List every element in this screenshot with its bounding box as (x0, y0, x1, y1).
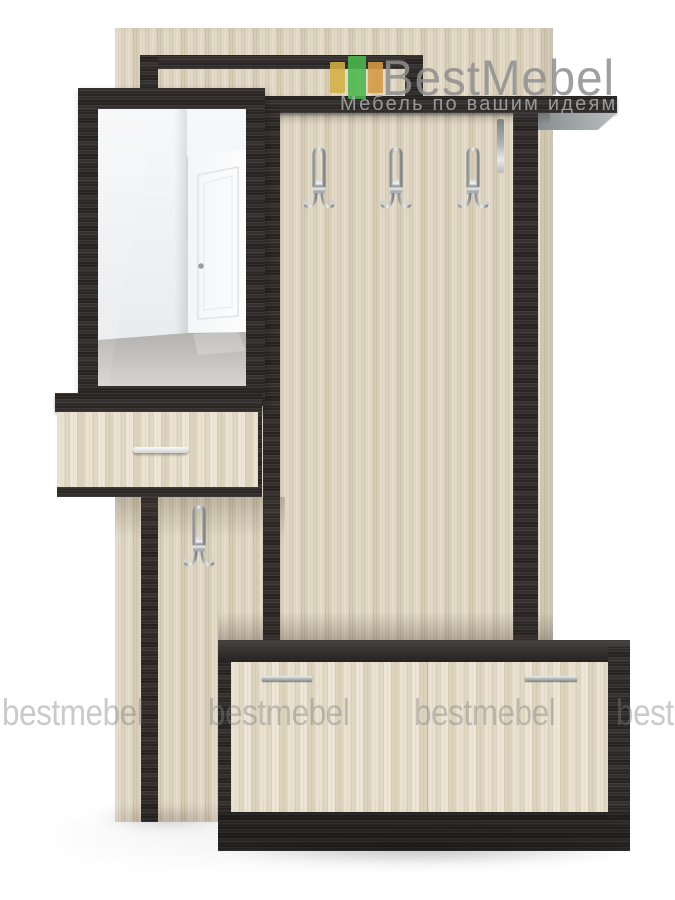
watermark-text: bestmebel (414, 692, 555, 734)
bench-door-right (428, 662, 608, 812)
left-floor-post (141, 490, 158, 822)
mirror-frame (78, 88, 265, 406)
watermark-text: bestmebel (208, 692, 349, 734)
logo-bar-yellow-icon (330, 62, 345, 93)
coat-hook-3 (455, 145, 491, 215)
brand-tagline: Мебель по вашим идеям (340, 93, 617, 116)
drawer-right-edge (258, 412, 262, 497)
drawer-handle (133, 447, 188, 453)
reflected-door (187, 149, 246, 333)
bench-top (218, 640, 630, 663)
mirror-glass (98, 109, 246, 386)
product-photo-hallway-unit: BestMebel Мебель по вашим идеям bestmebe… (0, 0, 675, 900)
coat-hook-1 (301, 145, 337, 215)
reflected-wall-corner (174, 109, 187, 333)
bench-handle-right (525, 676, 577, 681)
floor-reflection-highlight (193, 331, 246, 355)
coat-hook-2 (378, 145, 414, 215)
watermark-text: bestmebel (616, 692, 675, 734)
right-post (513, 113, 538, 648)
reflected-door-knob (198, 263, 204, 269)
side-hook-profile (497, 119, 504, 173)
coat-hook-lower (181, 503, 217, 573)
middle-post (263, 110, 280, 648)
drawer-bottom-panel (57, 487, 260, 497)
mirror-reflection (98, 109, 246, 386)
bench-handle-left (262, 676, 312, 681)
watermark-text: bestmebel (2, 692, 143, 734)
logo-bar-orange-icon (368, 62, 383, 93)
drawer-top-panel (55, 393, 262, 412)
bench-door-left (231, 662, 428, 812)
bench-plinth (218, 812, 630, 851)
